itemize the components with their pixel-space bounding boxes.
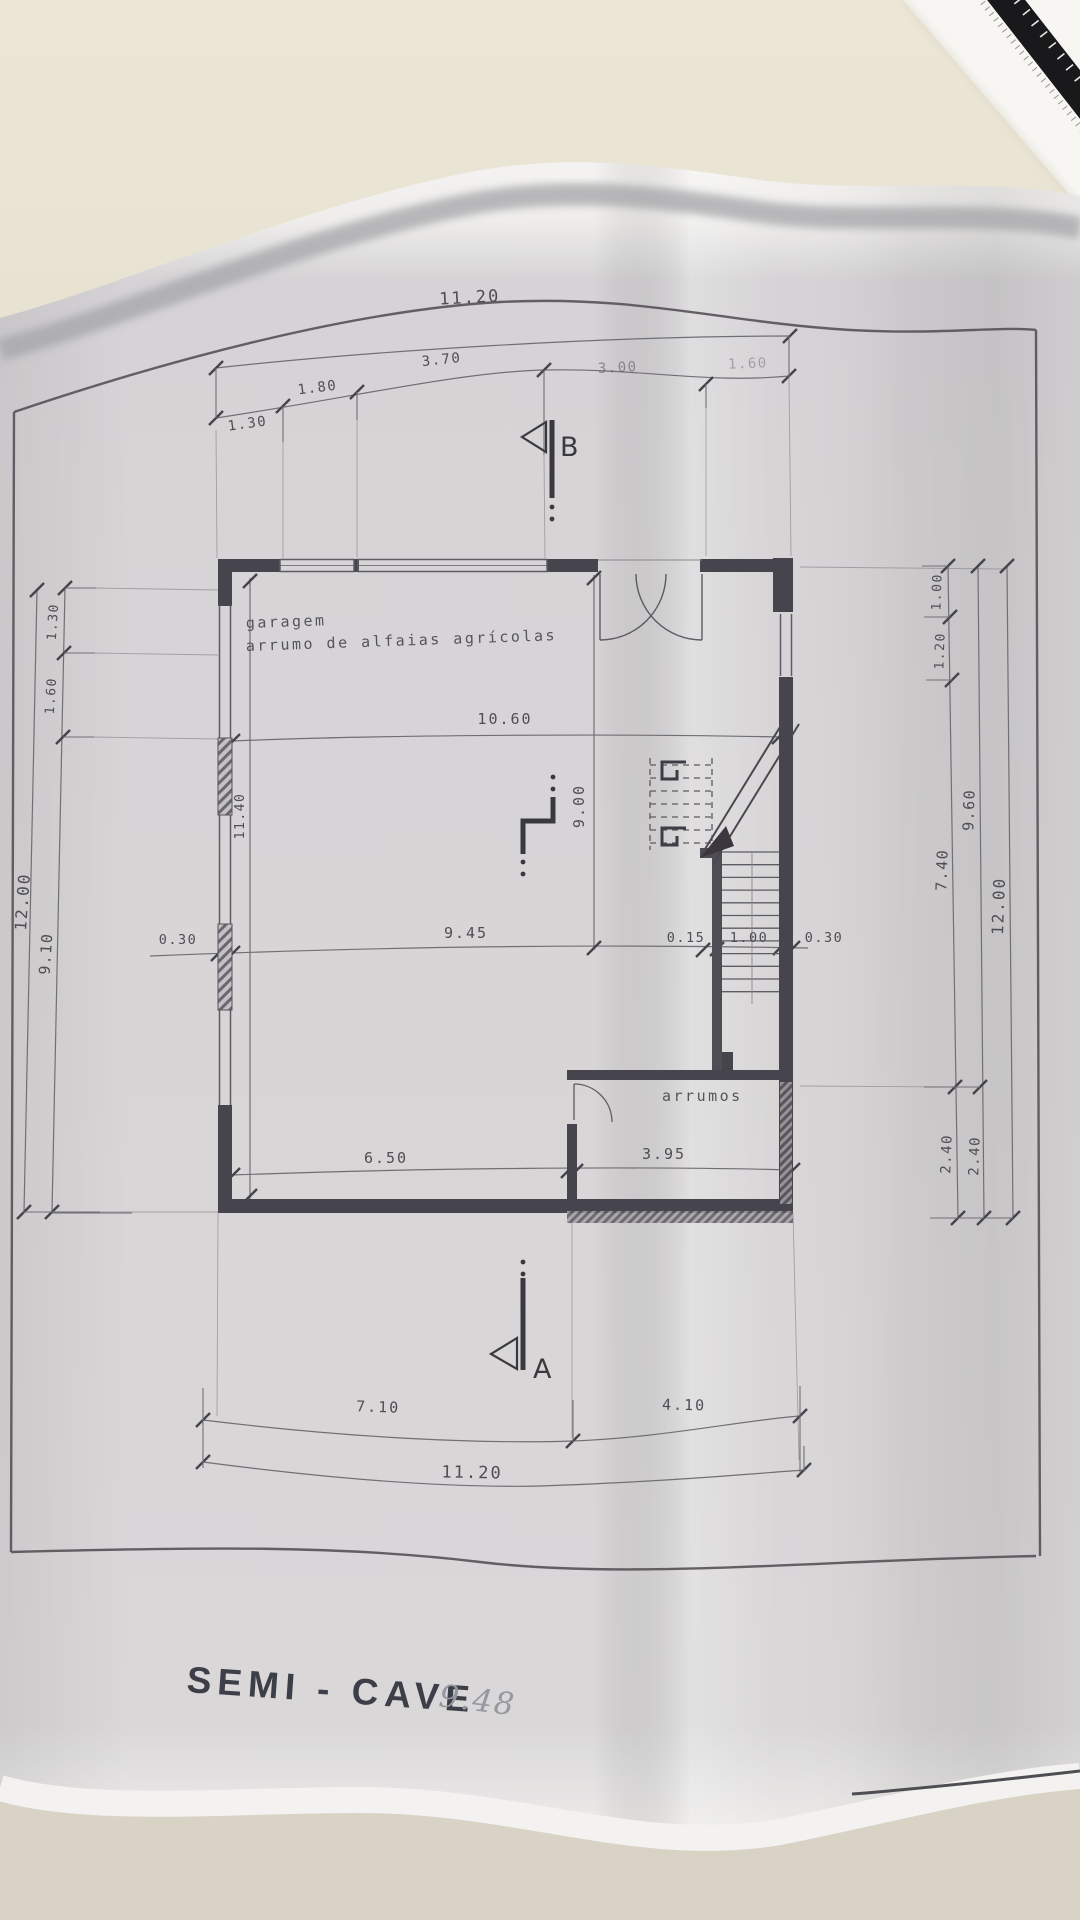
dim-left-total: 12.00 — [11, 872, 34, 931]
dim-left-seg-1: 1.30 — [45, 603, 63, 641]
dim-storage-row-left: 6.50 — [364, 1149, 408, 1167]
dim-right-inner-4: 2.40 — [938, 1134, 955, 1174]
dim-top-seg-5: 1.60 — [728, 355, 768, 372]
section-label-a: A — [533, 1354, 552, 1385]
dim-top-total: 11.20 — [439, 286, 501, 309]
paper-crease-shading — [0, 140, 1080, 1860]
dim-left-seg-2: 1.60 — [43, 677, 61, 715]
dim-right-inner-1: 1.00 — [929, 573, 945, 611]
photo-of-floor-plan: B A garagem arrumo de alfaias agrícolas … — [0, 0, 1080, 1920]
dim-right-middle-1: 9.60 — [959, 788, 978, 831]
dim-bottom-total: 11.20 — [441, 1462, 503, 1483]
dim-right-middle-2: 2.40 — [966, 1136, 983, 1176]
dim-garage-width: 10.60 — [477, 710, 532, 728]
dim-bottom-seg-2: 4.10 — [662, 1396, 706, 1415]
dim-right-inner-3: 7.40 — [932, 848, 951, 891]
section-label-b: B — [560, 432, 579, 463]
dim-bottom-seg-1: 7.10 — [356, 1397, 401, 1417]
dim-right-inner-2: 1.20 — [932, 632, 948, 670]
dim-stair-width: 1.00 — [730, 930, 769, 946]
storage-label: arrumos — [662, 1087, 743, 1105]
dim-right-total: 12.00 — [988, 876, 1009, 935]
dim-mid-span: 9.45 — [444, 924, 488, 942]
dim-top-seg-4: 3.00 — [598, 359, 639, 377]
dim-stair-wall: 0.15 — [667, 930, 706, 946]
dim-left-wall-inner: 11.40 — [233, 793, 248, 840]
dim-garage-depth: 9.00 — [570, 784, 588, 828]
dim-mid-left-wall: 0.30 — [159, 932, 198, 948]
dim-mid-right-wall: 0.30 — [805, 930, 844, 946]
paper-sheet — [0, 140, 1080, 1860]
garage-label-line1: garagem — [246, 611, 327, 632]
dim-left-seg-3: 9.10 — [36, 932, 57, 975]
dim-storage-row-right: 3.95 — [642, 1145, 686, 1163]
floor-plan-photo: B A garagem arrumo de alfaias agrícolas … — [0, 0, 1080, 1920]
